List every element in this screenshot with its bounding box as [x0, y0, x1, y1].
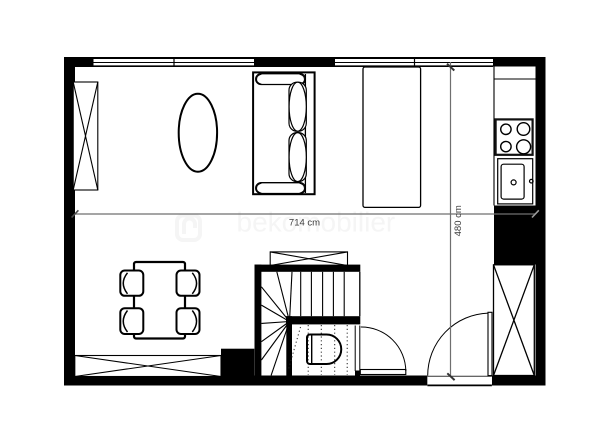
svg-text:714 cm: 714 cm — [289, 217, 320, 228]
svg-text:480 cm: 480 cm — [453, 205, 464, 236]
